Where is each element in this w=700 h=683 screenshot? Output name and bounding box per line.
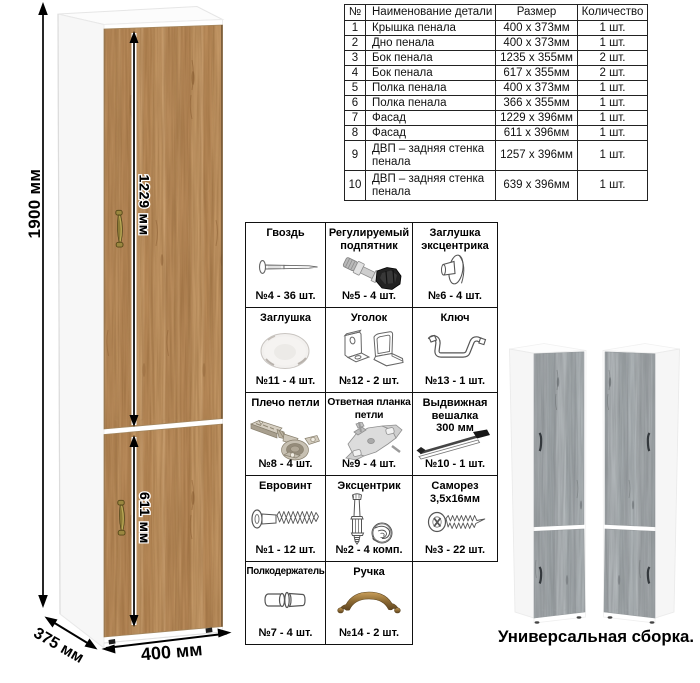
svg-text:611 мм: 611 мм bbox=[137, 492, 153, 544]
svg-text:1900 мм: 1900 мм bbox=[25, 169, 44, 239]
svg-text:Универсальная сборка.: Универсальная сборка. bbox=[498, 627, 694, 646]
svg-text:375 мм: 375 мм bbox=[31, 625, 87, 667]
svg-text:1229 мм: 1229 мм bbox=[136, 175, 152, 236]
svg-text:400 мм: 400 мм bbox=[140, 639, 203, 664]
